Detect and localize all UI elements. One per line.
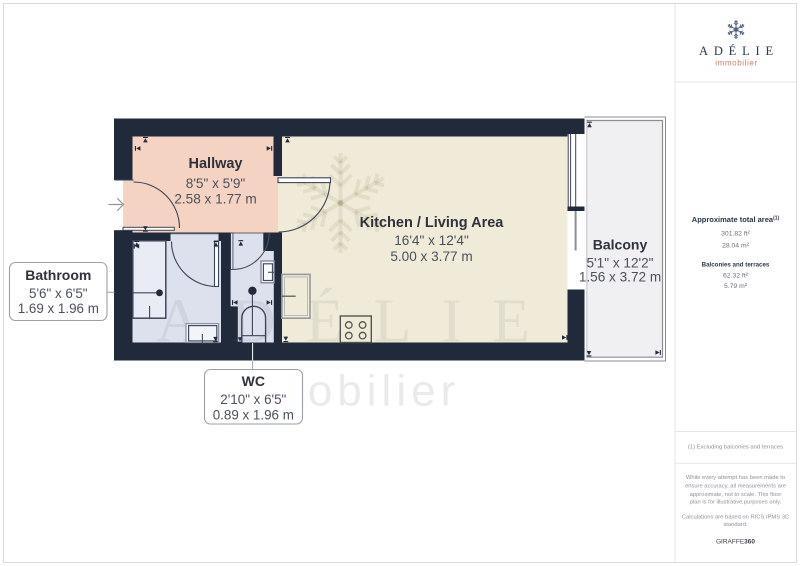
- svg-text:Hallway: Hallway: [189, 156, 243, 172]
- svg-text:GIRAFFE360: GIRAFFE360: [716, 539, 755, 546]
- svg-text:1.56 x 3.72 m: 1.56 x 3.72 m: [579, 270, 661, 285]
- svg-text:5'1" x 12'2": 5'1" x 12'2": [587, 256, 654, 271]
- svg-text:28.04 m²: 28.04 m²: [722, 243, 750, 250]
- svg-text:(1) Excluding balconies and te: (1) Excluding balconies and terraces: [688, 445, 783, 451]
- svg-text:5'6" x 6'5": 5'6" x 6'5": [29, 286, 88, 301]
- svg-text:2'10" x 6'5": 2'10" x 6'5": [220, 392, 286, 407]
- svg-text:0.89 x 1.96 m: 0.89 x 1.96 m: [213, 408, 294, 423]
- svg-text:Calculations are based on RICS: Calculations are based on RICS IPMS 3C: [682, 515, 789, 521]
- svg-text:plan is for illustrative purpo: plan is for illustrative purposes only.: [690, 500, 782, 506]
- svg-text:1.69 x 1.96 m: 1.69 x 1.96 m: [18, 301, 99, 316]
- svg-text:8'5" x 5'9": 8'5" x 5'9": [186, 176, 246, 191]
- svg-text:While every attempt has been m: While every attempt has been made to: [686, 475, 785, 481]
- svg-text:ADÉLIE: ADÉLIE: [699, 44, 779, 58]
- svg-text:Approximate total area(1): Approximate total area(1): [692, 215, 780, 224]
- svg-text:standard.: standard.: [723, 522, 748, 528]
- svg-text:Balconies and terraces: Balconies and terraces: [702, 262, 770, 269]
- svg-text:62.32 ft²: 62.32 ft²: [723, 273, 749, 280]
- svg-text:immobilier: immobilier: [715, 59, 757, 68]
- svg-text:5.79 m²: 5.79 m²: [724, 283, 748, 290]
- svg-text:ADÉLIE: ADÉLIE: [156, 288, 560, 356]
- svg-text:16'4" x 12'4": 16'4" x 12'4": [394, 233, 469, 248]
- svg-text:Bathroom: Bathroom: [25, 267, 91, 283]
- svg-text:301.82 ft²: 301.82 ft²: [721, 231, 750, 238]
- svg-text:Balcony: Balcony: [593, 237, 648, 253]
- svg-text:2.58 x 1.77 m: 2.58 x 1.77 m: [174, 192, 256, 207]
- svg-text:5.00 x 3.77 m: 5.00 x 3.77 m: [390, 249, 472, 264]
- svg-text:WC: WC: [242, 373, 265, 389]
- svg-text:Kitchen / Living Area: Kitchen / Living Area: [360, 215, 505, 231]
- svg-text:ensure accuracy, all measureme: ensure accuracy, all measurements are: [685, 484, 786, 490]
- svg-text:approximate, not to scale. Thi: approximate, not to scale. This floor: [690, 492, 782, 498]
